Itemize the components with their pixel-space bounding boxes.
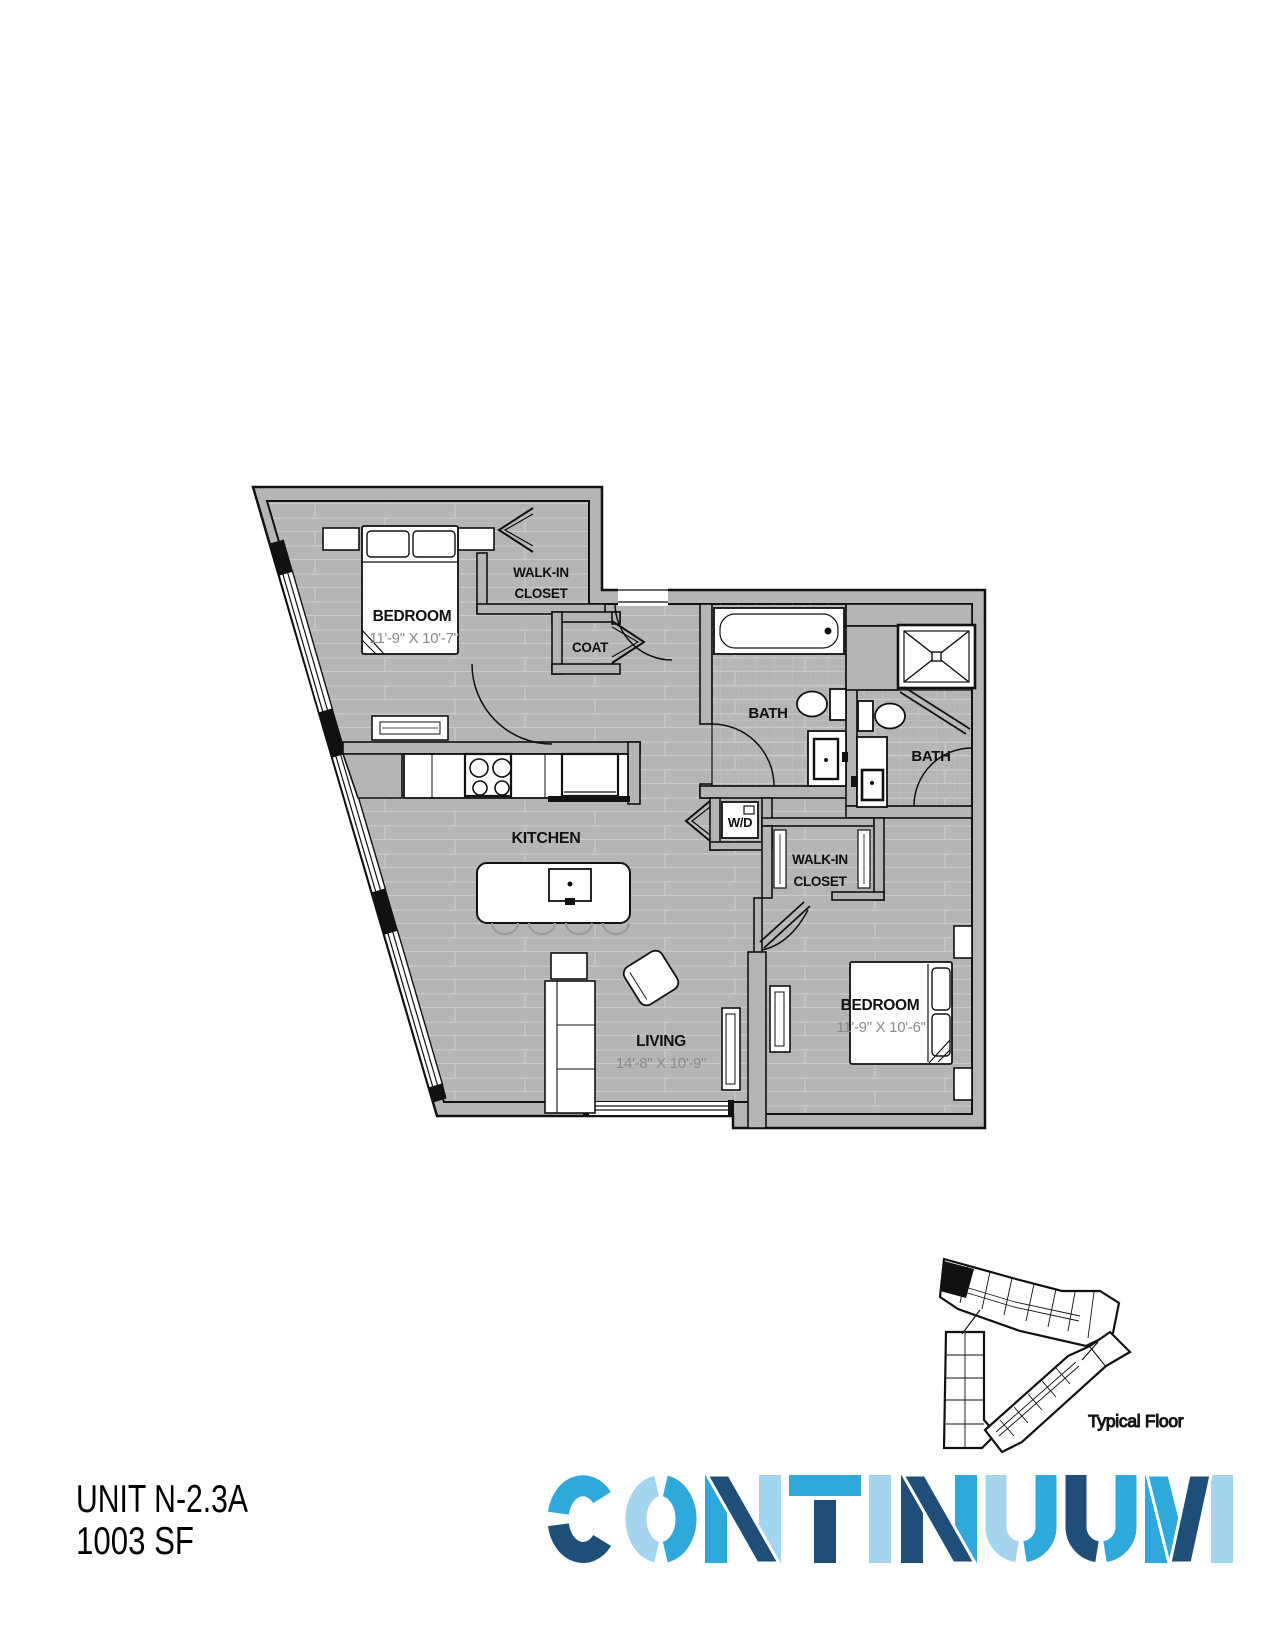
page-canvas: BEDROOM 11'-9" X 10'-7" WALK-IN CLOSET C…	[0, 0, 1275, 1650]
shower	[898, 625, 975, 688]
living-dims: 14'-8" X 10'-9"	[616, 1055, 706, 1072]
stove	[465, 754, 511, 796]
keyplan-bottom-wing	[985, 1346, 1106, 1452]
unit-name: UNIT N-2.3A	[76, 1478, 248, 1521]
wic2-label-line2: CLOSET	[794, 874, 848, 889]
logo-letter-o	[636, 1486, 657, 1552]
floorplan-page: BEDROOM 11'-9" X 10'-7" WALK-IN CLOSET C…	[0, 0, 1275, 1650]
bedroom2-label: BEDROOM	[841, 997, 920, 1014]
vanity-sink	[851, 737, 887, 807]
bedroom1-label: BEDROOM	[373, 608, 452, 625]
floor-plan: BEDROOM 11'-9" X 10'-7" WALK-IN CLOSET C…	[253, 487, 985, 1128]
logo-letter-m	[1145, 1475, 1233, 1563]
unit-area: 1003 SF	[76, 1520, 194, 1563]
unit-info: UNIT N-2.3A 1003 SF	[76, 1478, 248, 1563]
tv-console	[722, 1008, 740, 1090]
tv-console	[770, 986, 790, 1052]
wic1-label-line2: CLOSET	[515, 586, 569, 601]
dresser	[372, 716, 448, 740]
keyplan-caption: Typical Floor	[1088, 1411, 1184, 1431]
wic1-label-line1: WALK-IN	[513, 565, 569, 580]
logo-letter-u	[996, 1475, 1046, 1552]
bath2-label: BATH	[911, 748, 950, 765]
coat-label: COAT	[572, 640, 609, 655]
logo-letter-u2	[1076, 1475, 1126, 1552]
vanity-sink	[808, 731, 848, 786]
kitchen-island	[477, 863, 630, 934]
logo-letter-n2	[901, 1475, 977, 1563]
bedroom2-dims: 11'-9" X 10'-6"	[836, 1019, 925, 1036]
logo-letter-t	[789, 1475, 861, 1563]
living-label: LIVING	[636, 1033, 686, 1050]
bathtub	[714, 608, 844, 654]
logo-letter-c	[558, 1486, 602, 1513]
bedroom1-dims: 11'-9" X 10'-7"	[369, 630, 458, 647]
entry-opening	[618, 588, 668, 606]
sofa	[545, 953, 595, 1113]
logo-letter-i	[869, 1475, 891, 1563]
kitchen-label: KITCHEN	[511, 830, 580, 847]
logo-letter-n	[705, 1475, 781, 1563]
sliding-door	[583, 1100, 734, 1116]
toilet	[858, 701, 905, 731]
wic2-label-line1: WALK-IN	[792, 852, 848, 867]
bath1-label: BATH	[748, 705, 787, 722]
key-plan: Typical Floor	[940, 1259, 1184, 1452]
continuum-logo: CONTINUUM	[558, 1475, 1233, 1563]
wd-label: W/D	[728, 815, 752, 830]
